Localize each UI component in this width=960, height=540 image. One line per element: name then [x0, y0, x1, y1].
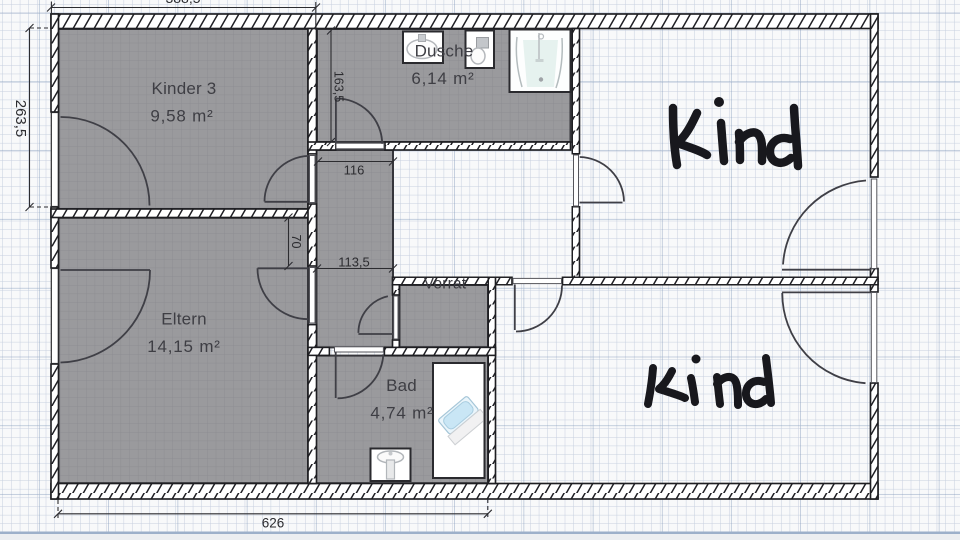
svg-text:626: 626 [262, 516, 285, 531]
svg-text:9,58 m²: 9,58 m² [150, 107, 213, 126]
svg-text:6,14 m²: 6,14 m² [411, 69, 474, 88]
svg-text:116: 116 [344, 163, 365, 178]
svg-text:14,15 m²: 14,15 m² [147, 337, 221, 356]
svg-text:Eltern: Eltern [161, 310, 207, 329]
svg-text:Bad: Bad [386, 376, 417, 395]
svg-text:Vorrat: Vorrat [424, 276, 467, 293]
svg-text:163,5: 163,5 [332, 71, 346, 102]
svg-text:Kinder 3: Kinder 3 [152, 79, 217, 98]
svg-text:4,74 m²: 4,74 m² [370, 404, 433, 423]
svg-text:263,5: 263,5 [12, 100, 29, 138]
svg-text:Dusche: Dusche [415, 42, 474, 61]
svg-text:70: 70 [289, 235, 303, 249]
svg-text:388,5: 388,5 [165, 0, 200, 6]
svg-text:113,5: 113,5 [338, 255, 370, 270]
